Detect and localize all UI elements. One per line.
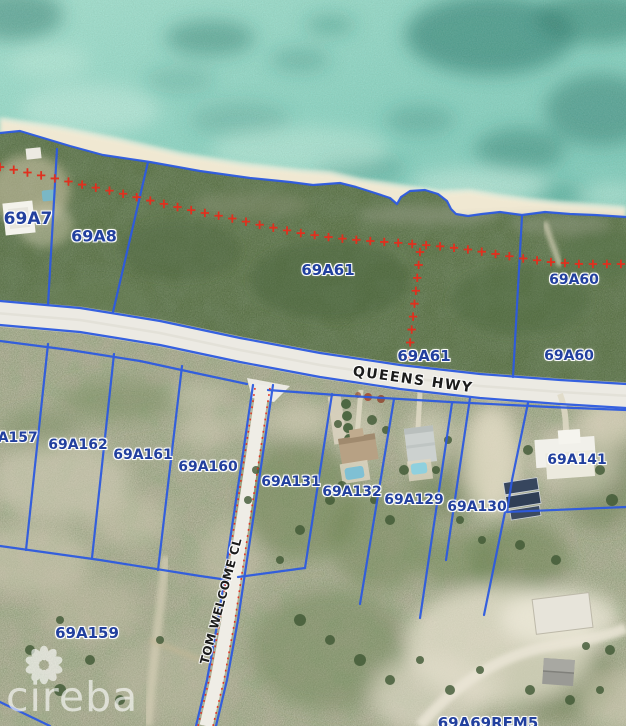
map-viewport[interactable]: 69A769A869A6169A6069A6169A6069A15769A162… — [0, 0, 626, 726]
satellite-map — [0, 0, 626, 726]
